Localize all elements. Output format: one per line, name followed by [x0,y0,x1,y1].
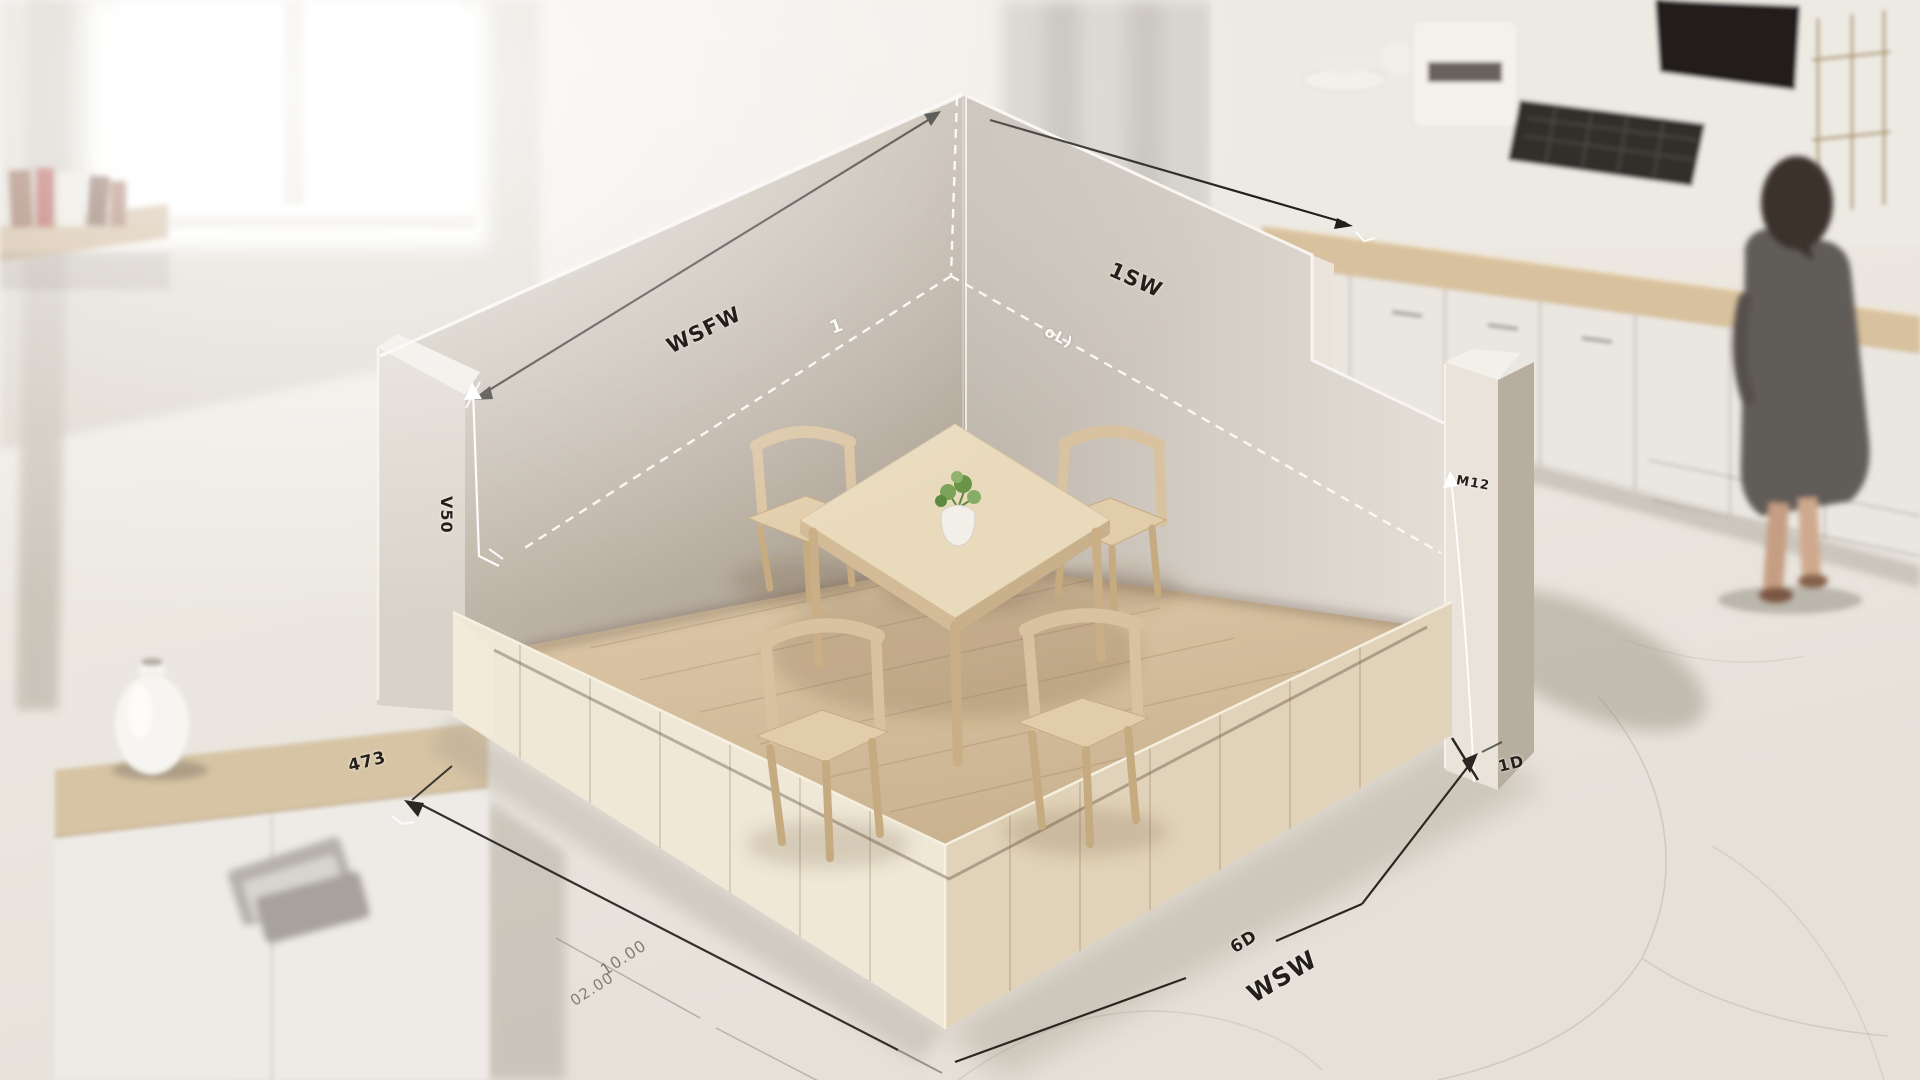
scene-graphics [0,0,1920,1080]
dress [1741,229,1870,516]
book-spine [58,172,84,226]
right-wall-step-face [1312,255,1334,370]
shoe [1798,574,1828,588]
coffee-machine-slot [1428,62,1502,82]
left-height-label: V50 [437,496,456,534]
pillar [1445,349,1534,790]
window-mullion [284,0,304,205]
room-render-scene: WSFW 1SW 1 oL) V50 M12 473 10.00 02.00 6… [0,0,1920,1080]
book-spine [8,169,33,228]
book-spine [86,175,109,226]
pillar-side-face [1498,362,1534,790]
hair [1761,156,1833,250]
plate-stack [1315,55,1375,73]
book-spine [36,168,54,228]
book-spine [110,181,126,227]
shoe [1759,587,1793,603]
teapot [1382,42,1414,74]
